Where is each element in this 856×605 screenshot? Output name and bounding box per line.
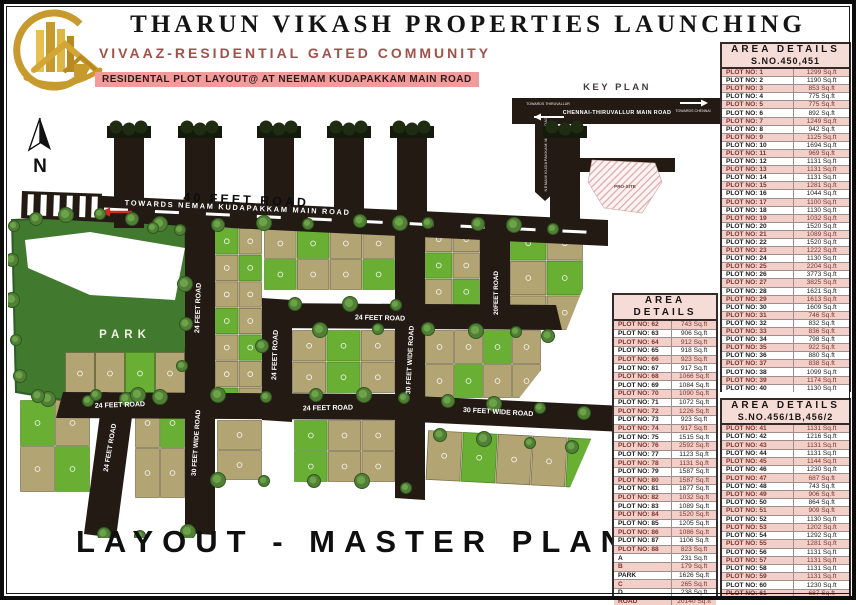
- plot-label: PLOT NO: 10: [722, 142, 794, 149]
- plot-cell: [293, 362, 326, 392]
- park-label: PARK: [99, 329, 151, 341]
- table-header: AREA DETAILS S.NO.450,451: [722, 44, 849, 69]
- plot-cell: [161, 449, 185, 498]
- plot-cell: [21, 447, 55, 492]
- area-details-table-1: AREA DETAILS S.NO.450,451 PLOT NO: 11299…: [720, 42, 851, 392]
- table-row: PLOT NO: 50864 Sq.ft: [722, 498, 849, 506]
- table-body: PLOT NO: 62743 Sq.ftPLOT NO: 63906 Sq.ft…: [614, 321, 716, 605]
- plot-label: PLOT NO: 80: [614, 477, 672, 485]
- tree-icon: [354, 215, 367, 228]
- plot-label: PLOT NO: 42: [722, 433, 794, 440]
- tree-icon: [343, 123, 356, 136]
- plot-label: PLOT NO: 6: [722, 109, 794, 116]
- plot-area: 923 Sq.ft: [672, 416, 716, 424]
- plot-area: 3773 Sq.ft: [794, 271, 849, 278]
- table-body: PLOT NO: 11299 Sq.ftPLOT NO: 21190 Sq.ft…: [722, 69, 849, 392]
- plot-label: PLOT NO: 31: [722, 312, 794, 319]
- tree-icon: [423, 218, 434, 229]
- table-row: PLOT NO: 601230 Sq.ft: [722, 580, 849, 588]
- plot-label: PARK: [614, 572, 672, 580]
- plot-area: 1515 Sq.ft: [672, 433, 716, 441]
- plot-area: 2592 Sq.ft: [672, 442, 716, 450]
- plot-area: 1174 Sq.ft: [794, 377, 849, 384]
- plot-area: 1131 Sq.ft: [794, 565, 849, 572]
- road-stub: [550, 134, 580, 228]
- table-row: PLOT NO: 681066 Sq.ft: [614, 372, 716, 381]
- tree-icon: [11, 335, 22, 346]
- table-row: PLOT NO: 273825 Sq.ft: [722, 278, 849, 286]
- tree-icon: [180, 318, 193, 331]
- tagline-text: RESIDENTAL PLOT LAYOUT@ AT NEEMAM KUDAPA…: [95, 72, 479, 87]
- plot-cell: [239, 255, 261, 280]
- plot-label: PLOT NO: 4: [722, 93, 794, 100]
- plot-area: 265 Sq.ft: [672, 580, 716, 588]
- table-row: PLOT NO: 751515 Sq.ft: [614, 432, 716, 441]
- table-row: PLOT NO: 831089 Sq.ft: [614, 501, 716, 510]
- tree-icon: [14, 370, 27, 383]
- road-label-24ft-lower-right: 24 FEET ROAD: [303, 405, 353, 413]
- tree-icon: [578, 407, 591, 420]
- plot-cell: [426, 279, 452, 304]
- tree-icon: [355, 474, 370, 489]
- table-row: PLOT NO: 531202 Sq.ft: [722, 523, 849, 531]
- tree-icon: [261, 392, 272, 403]
- plot-label: PLOT NO: 85: [614, 520, 672, 528]
- tree-icon: [422, 323, 435, 336]
- plot-area: 687 Sq.ft: [794, 474, 849, 481]
- plot-label: PLOT NO: 73: [614, 416, 672, 424]
- table-row: PLOT NO: 551281 Sq.ft: [722, 539, 849, 547]
- plot-cell: [66, 353, 95, 395]
- plot-label: PLOT NO: 1: [722, 69, 794, 76]
- plot-label: PLOT NO: 77: [614, 451, 672, 459]
- plot-block: [216, 229, 262, 414]
- plot-area: 1587 Sq.ft: [672, 477, 716, 485]
- tree-icon: [126, 213, 139, 226]
- plot-area: 909 Sq.ft: [794, 507, 849, 514]
- table-body: PLOT NO: 411131 Sq.ftPLOT NO: 421216 Sq.…: [722, 425, 849, 597]
- plot-label: PLOT NO: 20: [722, 223, 794, 230]
- plot-cell: [547, 261, 582, 294]
- plot-area: 179 Sq.ft: [672, 563, 716, 571]
- plot-label: PLOT NO: 59: [722, 573, 794, 580]
- plot-label: PLOT NO: 33: [722, 328, 794, 335]
- area-details-table-3: AREA DETAILS S.NO.456/1B,456/2 PLOT NO: …: [720, 398, 851, 596]
- plot-area: 1130 Sq.ft: [794, 385, 849, 392]
- plot-label: PLOT NO: 66: [614, 356, 672, 364]
- tree-icon: [373, 324, 384, 335]
- plot-cell: [453, 279, 479, 304]
- plot-label: PLOT NO: 12: [722, 158, 794, 165]
- plot-cell: [216, 282, 238, 307]
- plot-area: 1100 Sq.ft: [794, 199, 849, 206]
- table-row: PLOT NO: 11299 Sq.ft: [722, 69, 849, 76]
- table-row: PLOT NO: 791587 Sq.ft: [614, 467, 716, 476]
- plot-cell: [426, 365, 454, 398]
- plot-area: 1044 Sq.ft: [794, 190, 849, 197]
- plot-label: PLOT NO: 34: [722, 336, 794, 343]
- table-row: PLOT NO: 461230 Sq.ft: [722, 465, 849, 473]
- tree-icon: [212, 219, 225, 232]
- plot-label: PLOT NO: 56: [722, 549, 794, 556]
- plot-cell: [484, 365, 512, 398]
- table-row: C265 Sq.ft: [614, 579, 716, 588]
- plot-label: C: [614, 580, 672, 588]
- plot-label: PLOT NO: 22: [722, 239, 794, 246]
- tree-icon: [153, 390, 168, 405]
- plot-area: 1144 Sq.ft: [794, 458, 849, 465]
- plot-area: 798 Sq.ft: [794, 336, 849, 343]
- plot-label: PLOT NO: 17: [722, 199, 794, 206]
- plot-area: 1084 Sq.ft: [672, 381, 716, 389]
- plot-label: A: [614, 554, 672, 562]
- plot-label: PLOT NO: 53: [722, 524, 794, 531]
- tree-icon: [211, 473, 226, 488]
- table-row: PLOT NO: 871106 Sq.ft: [614, 536, 716, 545]
- tree-icon: [469, 324, 484, 339]
- table-row: PLOT NO: 21190 Sq.ft: [722, 76, 849, 84]
- tree-icon: [477, 432, 492, 447]
- table-row: ROAD20140 Sq.ft: [614, 597, 716, 605]
- table-row: PLOT NO: 51909 Sq.ft: [722, 506, 849, 514]
- tree-icon: [535, 403, 546, 414]
- plot-block: [295, 421, 395, 482]
- tree-icon: [59, 208, 74, 223]
- table-row: PLOT NO: 591131 Sq.ft: [722, 572, 849, 580]
- tree-icon: [303, 219, 314, 230]
- table-row: PARK1626 Sq.ft: [614, 571, 716, 580]
- plot-area: 892 Sq.ft: [794, 109, 849, 116]
- tree-icon: [259, 476, 270, 487]
- plot-cell: [239, 361, 261, 386]
- plot-cell: [96, 353, 125, 395]
- plot-label: PLOT NO: 35: [722, 344, 794, 351]
- plot-label: PLOT NO: 52: [722, 516, 794, 523]
- tree-icon: [418, 121, 431, 134]
- tagline: RESIDENTAL PLOT LAYOUT@ AT NEEMAM KUDAPA…: [95, 69, 470, 87]
- plot-cell: [216, 308, 238, 333]
- plot-label: PLOT NO: 37: [722, 360, 794, 367]
- table-row: PLOT NO: 781131 Sq.ft: [614, 458, 716, 467]
- table-row: PLOT NO: 201520 Sq.ft: [722, 222, 849, 230]
- plot-area: 1587 Sq.ft: [672, 468, 716, 476]
- plot-area: 1131 Sq.ft: [672, 459, 716, 467]
- plot-cell: [216, 361, 238, 386]
- table-row: PLOT NO: 231222 Sq.ft: [722, 246, 849, 254]
- tree-icon: [273, 123, 286, 136]
- tree-icon: [571, 121, 584, 134]
- table-row: PLOT NO: 263773 Sq.ft: [722, 270, 849, 278]
- plot-area: 918 Sq.ft: [672, 347, 716, 355]
- plot-area: 922 Sq.ft: [794, 344, 849, 351]
- plot-area: 1131 Sq.ft: [794, 166, 849, 173]
- plot-label: PLOT NO: 78: [614, 459, 672, 467]
- plot-cell: [362, 421, 394, 451]
- plot-label: PLOT NO: 67: [614, 364, 672, 372]
- table-row: PLOT NO: 381099 Sq.ft: [722, 367, 849, 375]
- table-row: B179 Sq.ft: [614, 562, 716, 571]
- plot-area: 1205 Sq.ft: [672, 520, 716, 528]
- table-row: PLOT NO: 4775 Sq.ft: [722, 92, 849, 100]
- table-row: PLOT NO: 241130 Sq.ft: [722, 254, 849, 262]
- table-row: PLOT NO: 47687 Sq.ft: [722, 473, 849, 481]
- table-row: PLOT NO: 821032 Sq.ft: [614, 493, 716, 502]
- plot-cell: [327, 362, 360, 392]
- table-row: PLOT NO: 762592 Sq.ft: [614, 441, 716, 450]
- plot-area: 838 Sq.ft: [794, 360, 849, 367]
- plot-cell: [56, 447, 90, 492]
- plot-label: PLOT NO: 9: [722, 134, 794, 141]
- plot-area: 1621 Sq.ft: [794, 288, 849, 295]
- table-row: PLOT NO: 121131 Sq.ft: [722, 157, 849, 165]
- plot-cell: [265, 260, 297, 290]
- plot-label: PLOT NO: 82: [614, 494, 672, 502]
- plot-area: 1032 Sq.ft: [672, 494, 716, 502]
- table-row: PLOT NO: 61687 Sq.ft: [722, 589, 849, 597]
- plot-block: [218, 421, 262, 480]
- plot-area: 743 Sq.ft: [672, 321, 716, 329]
- plot-label: PLOT NO: 79: [614, 468, 672, 476]
- tree-icon: [91, 390, 102, 401]
- road-label-20ft: 20FEET ROAD: [493, 271, 500, 315]
- plot-area: 906 Sq.ft: [672, 330, 716, 338]
- plot-area: 1123 Sq.ft: [672, 451, 716, 459]
- table-row: PLOT NO: 451144 Sq.ft: [722, 457, 849, 465]
- plot-area: 1131 Sq.ft: [794, 549, 849, 556]
- plot-block: [426, 331, 541, 398]
- plot-area: 20140 Sq.ft: [672, 598, 716, 605]
- plot-area: 687 Sq.ft: [794, 590, 849, 597]
- plot-label: PLOT NO: 63: [614, 330, 672, 338]
- plot-cell: [455, 365, 483, 398]
- plot-block: [265, 229, 395, 290]
- plot-cell: [295, 421, 327, 451]
- table-row: PLOT NO: 561131 Sq.ft: [722, 548, 849, 556]
- table-row: PLOT NO: 73923 Sq.ft: [614, 415, 716, 424]
- plot-label: PLOT NO: 25: [722, 263, 794, 270]
- plot-area: 1216 Sq.ft: [794, 433, 849, 440]
- tree-icon: [406, 123, 419, 136]
- plot-label: PLOT NO: 61: [722, 590, 794, 597]
- tree-icon: [393, 121, 406, 134]
- table-row: PLOT NO: 291613 Sq.ft: [722, 295, 849, 303]
- table-row: PLOT NO: 411131 Sq.ft: [722, 425, 849, 432]
- table-row: PLOT NO: 37838 Sq.ft: [722, 359, 849, 367]
- plot-area: 1131 Sq.ft: [794, 425, 849, 432]
- tree-icon: [330, 121, 343, 134]
- plot-area: 917 Sq.ft: [672, 364, 716, 372]
- table-row: PLOT NO: 101694 Sq.ft: [722, 141, 849, 149]
- table-subtitle: S.NO.456/1B,456/2: [722, 412, 849, 423]
- plot-area: 942 Sq.ft: [794, 126, 849, 133]
- tree-icon: [566, 441, 579, 454]
- plot-label: PLOT NO: 3: [722, 85, 794, 92]
- plot-area: 1090 Sq.ft: [672, 390, 716, 398]
- table-row: PLOT NO: 171100 Sq.ft: [722, 198, 849, 206]
- table-row: PLOT NO: 861086 Sq.ft: [614, 527, 716, 536]
- table-row: PLOT NO: 88823 Sq.ft: [614, 545, 716, 554]
- plot-label: PLOT NO: 40: [722, 385, 794, 392]
- table-row: PLOT NO: 6892 Sq.ft: [722, 108, 849, 116]
- table-row: PLOT NO: 801587 Sq.ft: [614, 476, 716, 485]
- tree-icon: [542, 330, 555, 343]
- table-row: PLOT NO: 11969 Sq.ft: [722, 149, 849, 157]
- plot-label: PLOT NO: 68: [614, 373, 672, 381]
- table-row: PLOT NO: 431131 Sq.ft: [722, 440, 849, 448]
- table-row: PLOT NO: 581131 Sq.ft: [722, 564, 849, 572]
- plot-cell: [218, 421, 262, 450]
- table-row: PLOT NO: 151281 Sq.ft: [722, 181, 849, 189]
- plot-label: PLOT NO: 29: [722, 296, 794, 303]
- plot-area: 906 Sq.ft: [794, 491, 849, 498]
- road-label-24ft-upper-h: 24 FEET ROAD: [355, 314, 405, 322]
- table-header: AREA DETAILS S.NO.456/1B,456/2: [722, 400, 849, 425]
- table-row: PLOT NO: 32832 Sq.ft: [722, 319, 849, 327]
- table-row: PLOT NO: 571131 Sq.ft: [722, 556, 849, 564]
- plot-label: PLOT NO: 55: [722, 540, 794, 547]
- plot-area: 1130 Sq.ft: [794, 516, 849, 523]
- plot-label: PLOT NO: 51: [722, 507, 794, 514]
- plot-label: PLOT NO: 36: [722, 352, 794, 359]
- plot-cell: [136, 449, 160, 498]
- tree-icon: [211, 388, 226, 403]
- plot-label: PLOT NO: 8: [722, 126, 794, 133]
- plot-cell: [21, 401, 55, 446]
- tree-icon: [148, 223, 159, 234]
- tree-icon: [391, 300, 402, 311]
- plot-area: 746 Sq.ft: [794, 312, 849, 319]
- table-row: PLOT NO: 63906 Sq.ft: [614, 329, 716, 338]
- plot-area: 1249 Sq.ft: [794, 118, 849, 125]
- table-row: PLOT NO: 131131 Sq.ft: [722, 165, 849, 173]
- plot-label: PLOT NO: 16: [722, 190, 794, 197]
- table-row: PLOT NO: 691084 Sq.ft: [614, 380, 716, 389]
- plot-area: 823 Sq.ft: [672, 546, 716, 554]
- plot-label: PLOT NO: 48: [722, 483, 794, 490]
- table-row: PLOT NO: 771123 Sq.ft: [614, 450, 716, 459]
- table-row: PLOT NO: 721226 Sq.ft: [614, 406, 716, 415]
- plot-label: PLOT NO: 60: [722, 581, 794, 588]
- tree-icon: [8, 293, 20, 308]
- plot-label: PLOT NO: 26: [722, 271, 794, 278]
- tree-icon: [343, 297, 358, 312]
- plot-area: 775 Sq.ft: [794, 101, 849, 108]
- plot-area: 1299 Sq.ft: [794, 69, 849, 76]
- north-arrow: N: [29, 118, 51, 177]
- plot-cell: [216, 335, 238, 360]
- tree-icon: [285, 121, 298, 134]
- tree-icon: [123, 123, 136, 136]
- plot-label: PLOT NO: 70: [614, 390, 672, 398]
- table-row: PLOT NO: 851205 Sq.ft: [614, 519, 716, 528]
- plot-label: PLOT NO: 39: [722, 377, 794, 384]
- plot-label: PLOT NO: 69: [614, 381, 672, 389]
- plot-cell: [361, 331, 394, 361]
- plot-area: 1281 Sq.ft: [794, 182, 849, 189]
- table-row: PLOT NO: 65918 Sq.ft: [614, 346, 716, 355]
- table-row: PLOT NO: 62743 Sq.ft: [614, 321, 716, 329]
- tree-icon: [507, 218, 522, 233]
- plot-cell: [531, 436, 567, 487]
- plot-area: 1609 Sq.ft: [794, 304, 849, 311]
- plot-label: PLOT NO: 57: [722, 557, 794, 564]
- plot-area: 1281 Sq.ft: [794, 540, 849, 547]
- tree-icon: [181, 121, 194, 134]
- plot-area: 1072 Sq.ft: [672, 399, 716, 407]
- plot-label: PLOT NO: 71: [614, 399, 672, 407]
- plot-area: 1226 Sq.ft: [672, 407, 716, 415]
- plot-cell: [216, 229, 238, 254]
- plot-area: 1520 Sq.ft: [672, 511, 716, 519]
- table-row: PLOT NO: 301609 Sq.ft: [722, 303, 849, 311]
- plot-area: 1222 Sq.ft: [794, 247, 849, 254]
- plot-cell: [239, 308, 261, 333]
- table-row: PLOT NO: 391174 Sq.ft: [722, 376, 849, 384]
- plot-label: PLOT NO: 76: [614, 442, 672, 450]
- table-row: PLOT NO: 191032 Sq.ft: [722, 214, 849, 222]
- table-row: PLOT NO: 161044 Sq.ft: [722, 189, 849, 197]
- table-row: PLOT NO: 3853 Sq.ft: [722, 84, 849, 92]
- plot-label: PLOT NO: 74: [614, 425, 672, 433]
- table-row: PLOT NO: 31746 Sq.ft: [722, 311, 849, 319]
- plot-label: PLOT NO: 86: [614, 528, 672, 536]
- plot-area: 1131 Sq.ft: [794, 441, 849, 448]
- plot-area: 1694 Sq.ft: [794, 142, 849, 149]
- plot-label: PLOT NO: 28: [722, 288, 794, 295]
- tree-icon: [32, 390, 45, 403]
- layout-map: N 40 FEET ROAD TOWARDS NEMAM KUDAPAKKAM …: [8, 108, 624, 538]
- plot-area: 2204 Sq.ft: [794, 263, 849, 270]
- tree-icon: [95, 209, 106, 220]
- plot-cell: [511, 261, 546, 294]
- tree-icon: [30, 213, 43, 226]
- table-header: AREA DETAILS: [614, 295, 716, 321]
- plot-cell: [484, 331, 512, 364]
- plot-area: 1520 Sq.ft: [794, 239, 849, 246]
- plot-area: 1877 Sq.ft: [672, 485, 716, 493]
- tree-icon: [260, 121, 273, 134]
- page-subtitle: VIVAAZ-RESIDENTIAL GATED COMMUNITY: [80, 45, 510, 61]
- logo-house: [74, 64, 87, 76]
- table-row: PLOT NO: 5775 Sq.ft: [722, 100, 849, 108]
- plot-cell: [363, 260, 395, 290]
- layout-title: LAYOUT - MASTER PLAN: [76, 524, 632, 560]
- plot-label: PLOT NO: 14: [722, 174, 794, 181]
- table-row: PLOT NO: 35922 Sq.ft: [722, 343, 849, 351]
- plot-label: PLOT NO: 88: [614, 546, 672, 554]
- plot-area: 3825 Sq.ft: [794, 279, 849, 286]
- tree-icon: [442, 395, 455, 408]
- plot-area: 864 Sq.ft: [794, 499, 849, 506]
- plot-label: PLOT NO: 64: [614, 338, 672, 346]
- plot-label: PLOT NO: 43: [722, 441, 794, 448]
- plot-cell: [265, 229, 297, 259]
- plot-label: D: [614, 589, 672, 597]
- key-plan-title: KEY PLAN: [583, 82, 651, 93]
- plot-label: PLOT NO: 7: [722, 118, 794, 125]
- table-row: PLOT NO: 701090 Sq.ft: [614, 389, 716, 398]
- tree-icon: [206, 121, 219, 134]
- plot-label: PLOT NO: 18: [722, 207, 794, 214]
- plot-cell: [156, 353, 185, 395]
- key-plan-towards-left: TOWARDS THIRUVALLUR: [526, 102, 570, 106]
- table-row: PLOT NO: 252204 Sq.ft: [722, 262, 849, 270]
- tree-icon: [546, 121, 559, 134]
- plot-label: PLOT NO: 27: [722, 279, 794, 286]
- plot-label: PLOT NO: 13: [722, 166, 794, 173]
- plot-area: 1106 Sq.ft: [672, 537, 716, 545]
- plot-label: PLOT NO: 65: [614, 347, 672, 355]
